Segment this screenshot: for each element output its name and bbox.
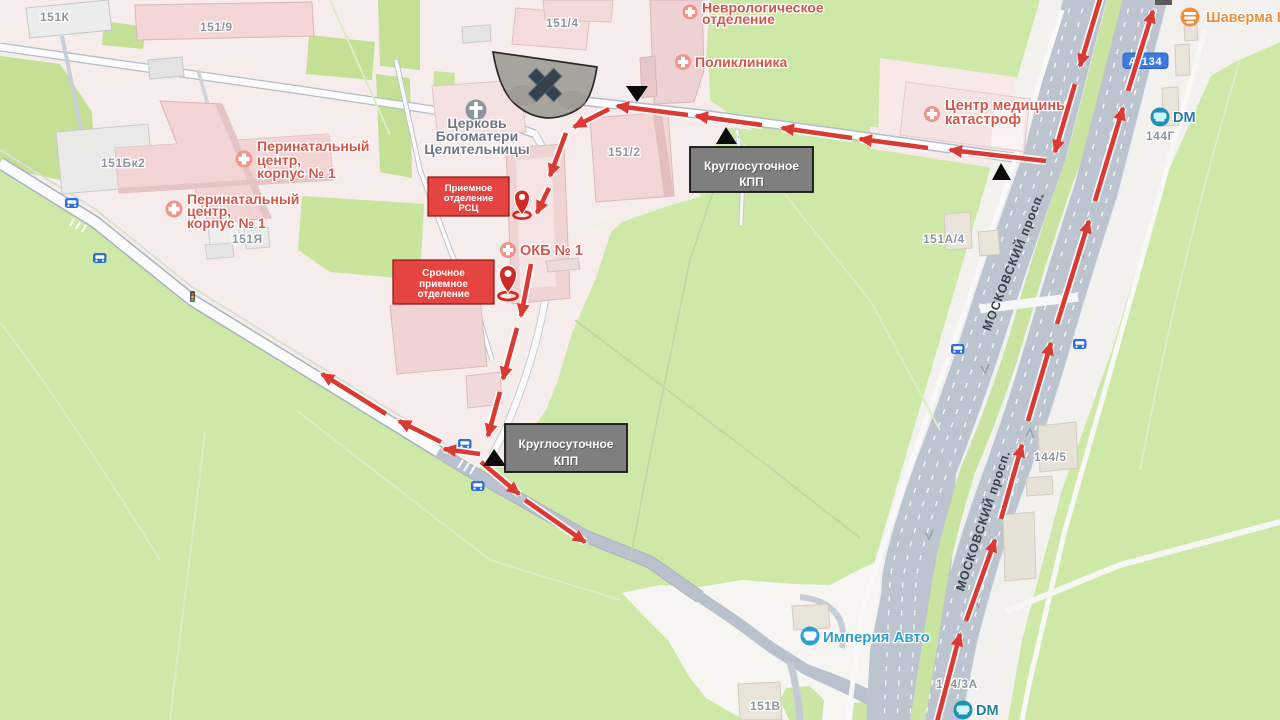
svg-text:151/9: 151/9 <box>200 20 233 34</box>
svg-text:151/4: 151/4 <box>546 16 579 30</box>
svg-text:корпус № 1: корпус № 1 <box>187 215 266 231</box>
svg-text:151Я: 151Я <box>232 232 263 246</box>
svg-text:Шаверма Н: Шаверма Н <box>1206 10 1280 26</box>
svg-text:катастроф: катастроф <box>945 112 1021 128</box>
svg-text:Круглосуточное: Круглосуточное <box>704 159 799 173</box>
svg-text:144/5: 144/5 <box>1034 450 1067 464</box>
svg-text:Срочное: Срочное <box>422 268 465 279</box>
svg-text:151В: 151В <box>750 699 781 713</box>
svg-text:151/2: 151/2 <box>608 145 641 159</box>
svg-text:151А/4: 151А/4 <box>923 232 965 246</box>
svg-text:151К: 151К <box>40 10 70 24</box>
svg-text:Целительницы: Целительницы <box>424 141 529 157</box>
svg-text:отделение: отделение <box>417 289 470 300</box>
svg-text:КПП: КПП <box>554 454 579 468</box>
svg-text:РСЦ: РСЦ <box>459 203 479 214</box>
svg-text:151Бк2: 151Бк2 <box>101 156 145 170</box>
svg-text:Круглосуточное: Круглосуточное <box>519 437 614 451</box>
svg-text:КПП: КПП <box>739 175 764 189</box>
svg-text:DM: DM <box>1173 110 1196 126</box>
svg-text:отделение: отделение <box>702 11 775 27</box>
svg-text:ОКБ № 1: ОКБ № 1 <box>520 243 583 259</box>
svg-text:Поликлиника: Поликлиника <box>695 54 788 70</box>
svg-text:144Г: 144Г <box>1146 129 1175 143</box>
svg-text:Империя Авто: Империя Авто <box>823 629 930 646</box>
svg-text:корпус № 1: корпус № 1 <box>257 165 336 181</box>
svg-text:DM: DM <box>976 703 999 719</box>
